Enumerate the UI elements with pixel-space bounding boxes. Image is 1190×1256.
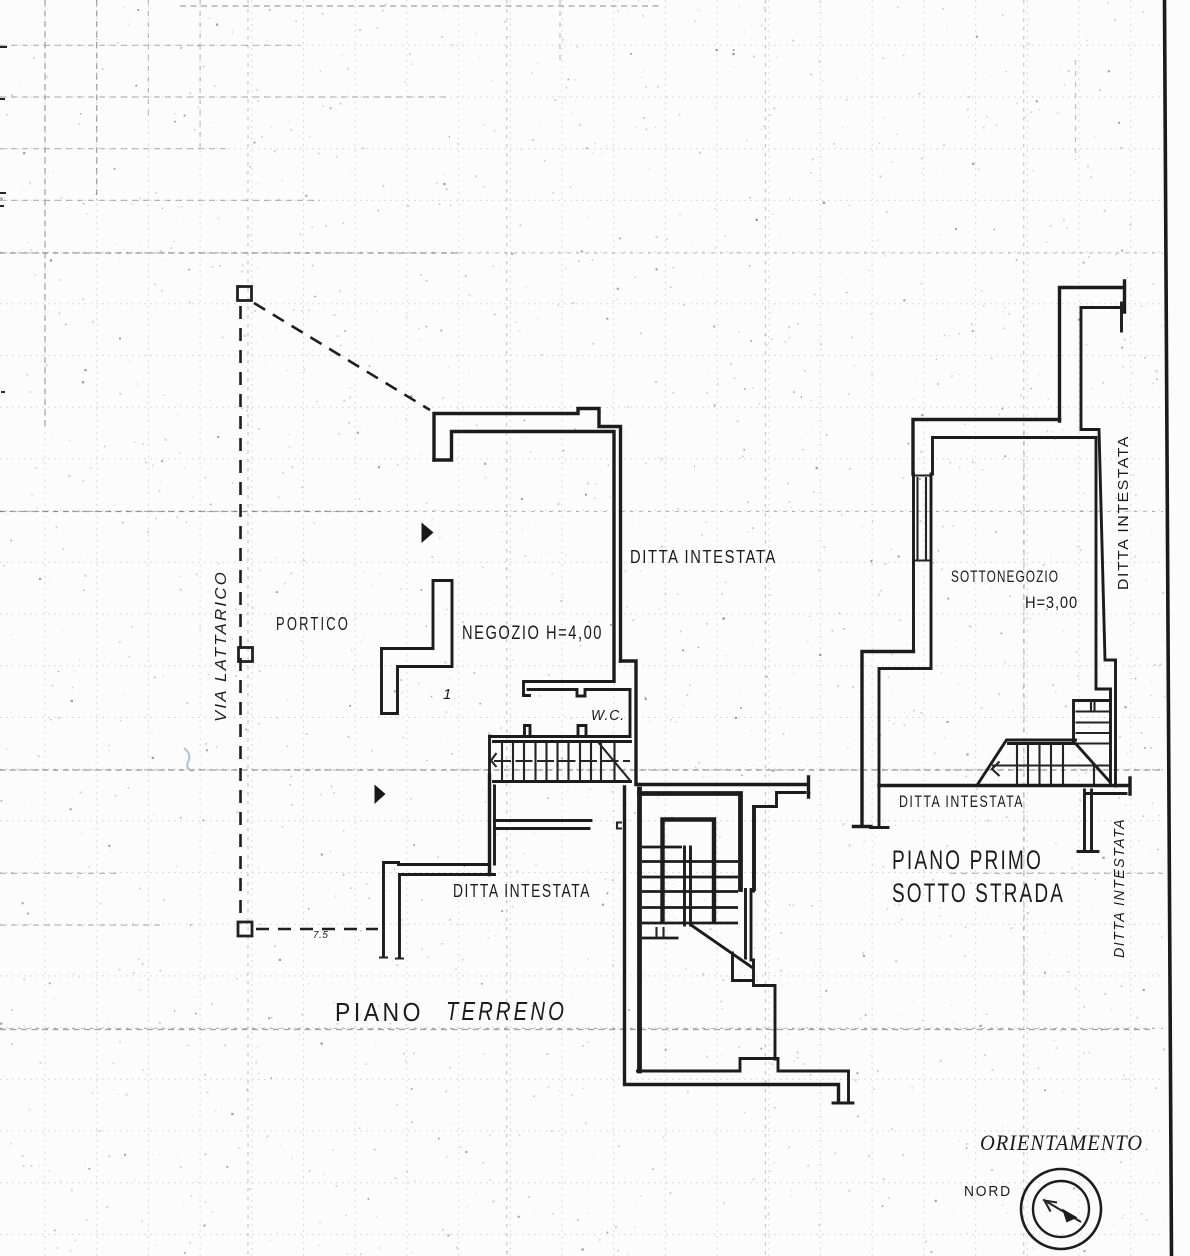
svg-text:DITTA INTESTATA: DITTA INTESTATA [630,547,777,567]
svg-text:ORIENTAMENTO: ORIENTAMENTO [980,1130,1143,1155]
svg-text:SOTTONEGOZIO: SOTTONEGOZIO [951,567,1059,586]
svg-text:DITTA INTESTATA: DITTA INTESTATA [453,881,591,901]
svg-text:NEGOZIO H=4,00: NEGOZIO H=4,00 [462,623,603,644]
svg-text:7.5: 7.5 [313,930,328,941]
svg-text:NORD: NORD [964,1183,1012,1200]
svg-text:PORTICO: PORTICO [276,614,350,634]
svg-text:W.C.: W.C. [591,707,625,724]
svg-text:VIA LATTARICO: VIA LATTARICO [213,570,230,722]
svg-text:H=3,00: H=3,00 [1025,593,1078,612]
svg-text:TERRENO: TERRENO [446,996,567,1026]
svg-text:PIANO PRIMO: PIANO PRIMO [892,845,1043,875]
svg-text:DITTA INTESTATA: DITTA INTESTATA [1111,818,1128,958]
svg-text:DITTA INTESTATA: DITTA INTESTATA [1115,435,1132,590]
svg-text:PIANO: PIANO [335,997,424,1027]
svg-text:DITTA INTESTATA: DITTA INTESTATA [899,792,1024,811]
svg-text:SOTTO STRADA: SOTTO STRADA [892,878,1065,908]
svg-text:1: 1 [443,686,451,703]
